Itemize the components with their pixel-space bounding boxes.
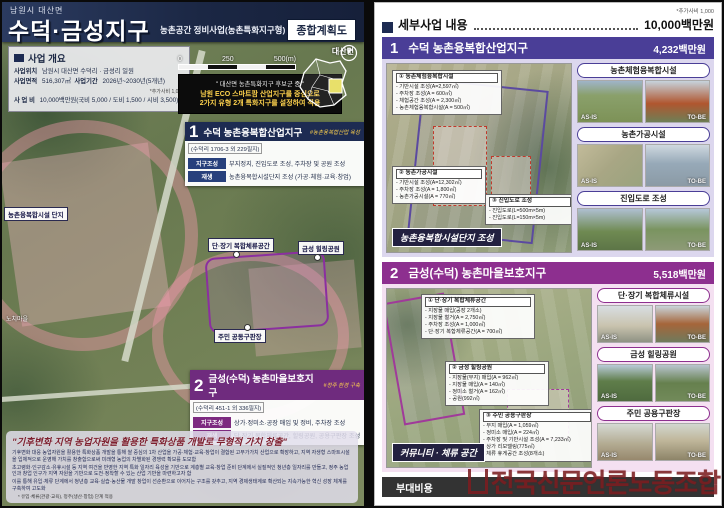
callout-line: - 지장물 매입(공장 2개소) [425,308,531,315]
section1-photo-column: 농촌체험융복합시설 AS-IS TO-BE 농촌가공시설 AS-IS TO-BE… [577,63,710,253]
to-be-photo: TO-BE [655,364,711,402]
scale-segment [266,65,295,69]
to-be-photo: TO-BE [655,423,711,461]
as-is-photo: AS-IS [597,423,653,461]
poster-canvas: 남원시 대산면 수덕·금성지구 농촌공간 정비사업(농촌특화지구형) 종합계획도… [0,0,724,508]
goal-panel: "기후변화 지역 농업자원을 활용한 특화상품 개발로 무형적 가치 창출" 기… [6,431,358,503]
callout-line: - 진입도로(L=150m×5m) [489,215,571,222]
unit-note: *추가사비 1,000 [14,88,184,95]
area-value: 516,307㎡ [42,78,71,85]
title-square-icon [382,22,393,33]
district1-hashtag: #농촌융복합산업 육성 [310,128,360,136]
to-be-tag: TO-BE [687,394,706,400]
item-label: 농촌가공시설 [577,127,710,142]
to-be-photo: TO-BE [655,305,711,343]
section1-amount: 4,232백만원 [653,41,706,56]
callout-title: ② 금성 힐링공원 [449,364,545,374]
district-outline-map [296,57,350,109]
callout-processing-facility: ② 농촌가공시설 - 기반시설 조성(A=12,302㎡) - 주차장 조성(A… [392,166,486,204]
district2-title: 금성(수덕) 농촌마을보호지구 [208,371,318,399]
as-is-photo: AS-IS [577,80,643,123]
photo-pair: AS-IS TO-BE [597,305,710,343]
village-boundary [204,250,329,334]
section2-body: ① 단·장기 복합체류공간 - 지장물 매입(공장 2개소) - 지장물 철거(… [382,284,714,472]
cost-value: 10,000백만원(국비 5,000 / 도비 1,500 / 시비 3,500… [40,97,179,104]
section1-site-map: ① 농촌체험융복합시설 - 기반시설 조성(A=2,597㎡) - 주차장 조성… [386,63,572,253]
row-label: 재생 [188,171,226,182]
map-label-stay: 단·장기 복합체류공간 [208,238,274,252]
callout-line: - 체류 휴게공간 조성(8개소) [483,451,591,458]
overview-area-row: 사업면적 516,307㎡ 사업기간 2026년~2030년(5개년) [14,78,184,86]
goal-title: "기후변화 지역 농업자원을 활용한 특화상품 개발로 무형적 가치 창출" [12,434,352,448]
location-label: 사업위치 [14,68,37,75]
callout-line: - 지장물(부지) 매입(A = 962㎡) [449,375,545,382]
as-is-tag: AS-IS [601,335,617,341]
district2-number: 2 [194,377,203,394]
scale-segment [237,65,266,69]
item-label: 금성 힐링공원 [597,347,710,362]
scale-bar-segments [178,64,296,70]
detail-header-row: 세부사업 내용 10,000백만원 [382,16,714,33]
to-be-tag: TO-BE [687,179,706,185]
callout-stay-space: ① 단·장기 복합체류공간 - 지장물 매입(공장 2개소) - 지장물 철거(… [421,294,535,339]
as-is-tag: AS-IS [581,115,597,121]
as-is-tag: AS-IS [581,179,597,185]
title-square-icon [14,54,24,62]
total-budget: 10,000백만원 [644,16,714,33]
row-label: 지구조성 [193,417,231,428]
connector-dot [233,251,240,258]
to-be-photo: TO-BE [645,144,711,187]
area-label: 사업면적 [14,78,37,85]
callout-healing-park: ② 금성 힐링공원 - 지장물(부지) 매입(A = 962㎡) - 지장물 매… [445,361,549,406]
map-label-market: 주민 공동구판장 [214,329,266,343]
as-is-photo: AS-IS [577,208,643,251]
scale-ticks: 0 250 500(m) [178,56,296,63]
district1-title: 수덕 농촌융복합산업지구 [203,125,304,139]
connector-dot [314,254,321,261]
map-label-park: 금성 힐링공원 [298,241,344,255]
unit-note: *추가사비 1,000 [382,7,714,15]
row-value: 상가·정미소·공장 매입 및 정비, 주차장 조성 [234,418,345,427]
scale-tick-0: 0 [178,56,182,63]
item-label: 농촌체험융복합시설 [577,63,710,78]
section2-title: 금성(수덕) 농촌마을보호지구 [408,265,653,281]
callout-line: - 기반시설 조성(A=2,597㎡) [396,84,498,91]
to-be-tag: TO-BE [687,335,706,341]
district2-row-create: 지구조성 상가·정미소·공장 매입 및 정비, 주차장 조성 [193,417,361,428]
left-page-master-plan: 남원시 대산면 수덕·금성지구 농촌공간 정비사업(농촌특화지구형) 종합계획도… [2,2,364,506]
row-label: 지구조성 [188,158,226,169]
district1-address: (수덕리 1706-3 외 229필지) [188,143,262,154]
district2-address: (수덕리 451-1 외 336필지) [193,402,264,413]
district1-number: 1 [189,123,198,140]
scale-segment [208,65,237,69]
detail-title: 세부사업 내용 [398,16,468,33]
goal-bullet-2: 초고령화·인구감소·유휴시설 등 지역 여건을 반영한 지역 특화 일자리 육성… [12,465,352,479]
map-label-village: 노치마을 [6,314,28,323]
callout-title: ③ 진입도로 조성 [489,197,571,207]
callout-access-road: ③ 진입도로 조성 - 진입도로(L=500m×5m) - 진입도로(L=150… [485,194,572,225]
section1-map-badge: 농촌융복합시설단지 조성 [392,228,502,247]
callout-line: - 공원(992㎡) [449,396,545,403]
goal-footnote: * 유입·체류(관광·교육), 정주(생산·창업) 단계 적용 [18,494,352,500]
goal-bullet-1: 기후변화 대응 농업자원을 활용한 특화상품 개발을 통해 쌀 중심의 1차 산… [12,450,352,464]
callout-community-market: ③ 주민 공용구판장 - 부지 매입(A = 1,059㎡) - 정미소 매입(… [479,409,592,462]
union-logo-icon [468,469,488,494]
item-label: 진입도로 조성 [577,191,710,206]
photo-pair: AS-IS TO-BE [577,144,710,187]
district1-callout: 1 수덕 농촌융복합산업지구 #농촌융복합산업 육성 (수덕리 1706-3 외… [185,122,364,186]
section2-number: 2 [390,265,398,282]
callout-line: - 부지 매입(A = 1,059㎡) [483,423,591,430]
plan-type-badge: 종합계획도 [287,19,356,41]
as-is-tag: AS-IS [581,243,597,249]
compass-icon [340,44,358,62]
as-is-photo: AS-IS [577,144,643,187]
district1-row-regen: 재생 농촌융복합시설단지 조성 (가공·체험·교육·창업) [188,171,361,182]
section1-number: 1 [390,40,398,57]
project-overview-box: 사업 개요 사업위치 남원시 대산면 수덕리 · 금성리 일원 사업면적 516… [8,46,190,112]
district1-row-create: 지구조성 부지정지, 진입도로 조성, 주차장 및 공원 조성 [188,158,361,169]
map-scale-bar: 0 250 500(m) [178,56,296,70]
section2-amount: 5,518백만원 [653,266,706,281]
callout-title: ③ 주민 공용구판장 [483,412,591,422]
as-is-tag: AS-IS [601,394,617,400]
left-page-header: 남원시 대산면 수덕·금성지구 농촌공간 정비사업(농촌특화지구형) 종합계획도 [2,2,364,42]
overview-title-row: 사업 개요 [14,51,184,65]
as-is-tag: AS-IS [601,453,617,459]
connector-dot [244,324,251,331]
scale-tick-500: 500(m) [274,56,296,63]
callout-line: - 단·장기 복합체류공간(A = 700㎡) [425,329,531,336]
watermark-text: 전국신문언론노동조합 [491,463,720,500]
section1-bar: 1 수덕 농촌융복합산업지구 4,232백만원 [382,37,714,59]
scale-segment [179,65,208,69]
row-value: 농촌융복합시설단지 조성 (가공·체험·교육·창업) [229,172,351,181]
district2-hashtag: #정주 환경 구축 [324,381,360,389]
to-be-photo: TO-BE [645,208,711,251]
overview-cost-row: 사 업 비 10,000백만원(국비 5,000 / 도비 1,500 / 시비… [14,97,184,105]
section2-site-map: ① 단·장기 복합체류공간 - 지장물 매입(공장 2개소) - 지장물 철거(… [386,288,592,468]
dotted-leader [474,28,639,30]
overview-title: 사업 개요 [28,51,66,65]
to-be-photo: TO-BE [645,80,711,123]
callout-experience-facility: ① 농촌체험융복합시설 - 기반시설 조성(A=2,597㎡) - 주차장 조성… [392,70,502,115]
callout-line: - 농촌체험융복합시설(A = 500㎡) [396,105,498,112]
to-be-tag: TO-BE [687,115,706,121]
photo-pair: AS-IS TO-BE [577,80,710,123]
item-label: 단·장기 복합체류시설 [597,288,710,303]
press-union-watermark: 전국신문언론노동조합 [468,463,720,500]
map-label-complex: 농촌융복합시설 단지 [4,207,68,221]
photo-pair: AS-IS TO-BE [597,364,710,402]
callout-title: ① 농촌체험융복합시설 [396,73,498,83]
item-label: 주민 공용구판장 [597,406,710,421]
callout-line: - 진입도로(L=500m×5m) [489,208,571,215]
section1-title: 수덕 농촌융복합산업지구 [408,40,653,56]
goal-bullet-3: 이를 통해 유입·체류 단계에서 청년층 교육·실습·농산물 개발 창업이 선순… [12,479,352,493]
photo-pair: AS-IS TO-BE [597,423,710,461]
period-value: 2026년~2030년(5개년) [102,78,165,85]
location-value: 남원시 대산면 수덕리 · 금성리 일원 [42,68,134,75]
ancillary-cost-label: 부대비용 [396,480,433,495]
right-page-detail: *추가사비 1,000 세부사업 내용 10,000백만원 1 수덕 농촌융복합… [374,2,722,506]
section2-map-badge: 커뮤니티 · 체류 공간 [392,443,485,462]
scale-tick-250: 250 [222,56,234,63]
callout-line: - 기반시설 조성(A=12,302㎡) [396,180,482,187]
section2-bar: 2 금성(수덕) 농촌마을보호지구 5,518백만원 [382,262,714,284]
cost-label: 사 업 비 [14,97,35,104]
district1-header: 1 수덕 농촌융복합산업지구 #농촌융복합산업 육성 [185,122,364,141]
district2-header: 2 금성(수덕) 농촌마을보호지구 #정주 환경 구축 [190,370,364,400]
row-value: 부지정지, 진입도로 조성, 주차장 및 공원 조성 [229,159,345,168]
period-label: 사업기간 [75,78,98,85]
callout-line: - 농촌가공시설(A = 770㎡) [396,194,482,201]
locator-inset-map: 대산면 [296,46,354,110]
district1-body: (수덕리 1706-3 외 229필지) 지구조성 부지정지, 진입도로 조성,… [185,141,364,186]
as-is-photo: AS-IS [597,305,653,343]
overview-location-row: 사업위치 남원시 대산면 수덕리 · 금성리 일원 [14,68,184,76]
callout-title: ② 농촌가공시설 [396,169,482,179]
section2-photo-column: 단·장기 복합체류시설 AS-IS TO-BE 금성 힐링공원 AS-IS TO… [597,288,710,468]
callout-title: ① 단·장기 복합체류공간 [425,297,531,307]
to-be-tag: TO-BE [687,453,706,459]
page-title: 수덕·금성지구 [8,12,150,46]
page-subtitle: 농촌공간 정비사업(농촌특화지구형) [160,24,285,36]
as-is-photo: AS-IS [597,364,653,402]
to-be-tag: TO-BE [687,243,706,249]
section1-body: ① 농촌체험융복합시설 - 기반시설 조성(A=2,597㎡) - 주차장 조성… [382,59,714,257]
photo-pair: AS-IS TO-BE [577,208,710,251]
